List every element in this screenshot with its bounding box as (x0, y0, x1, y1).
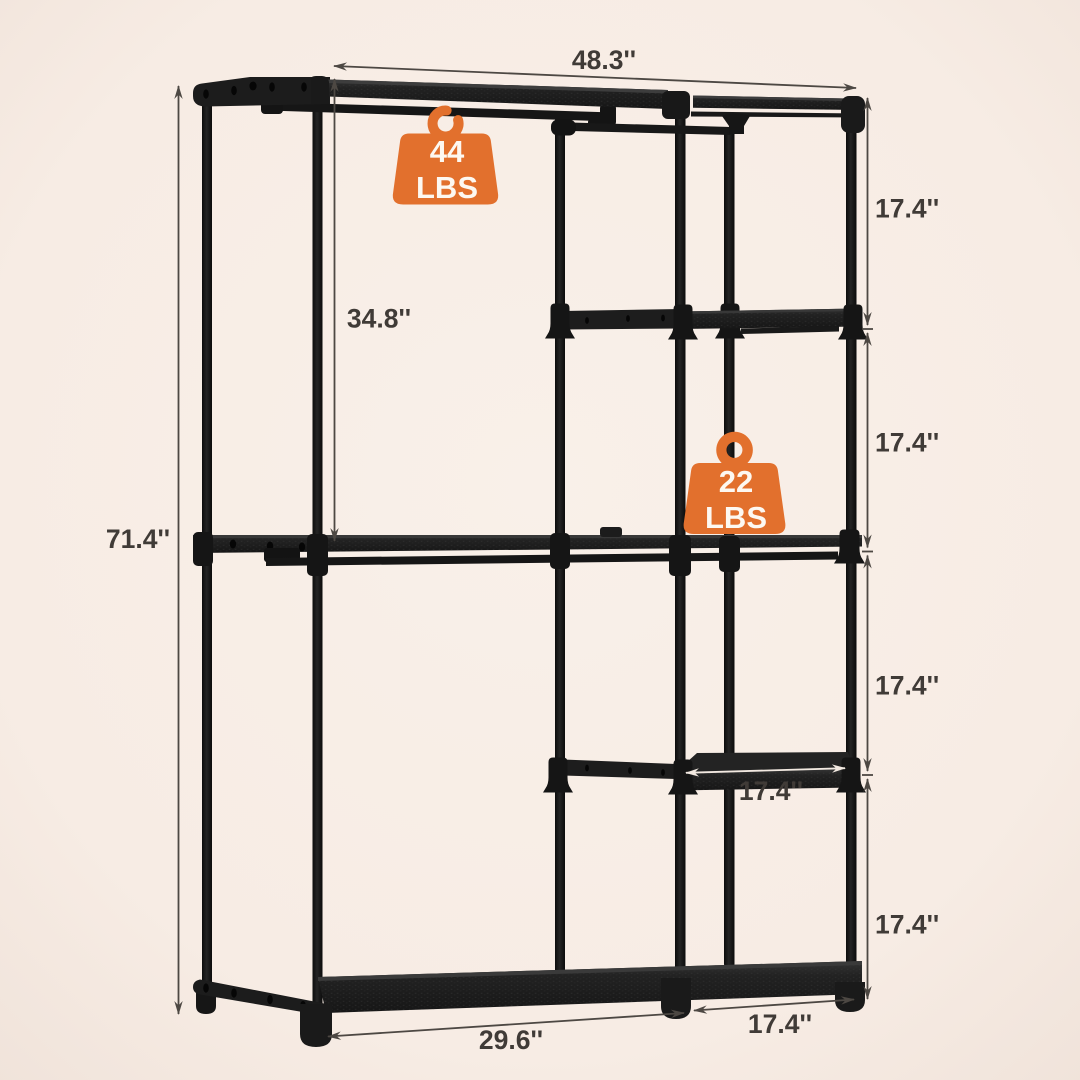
svg-text:17.4'': 17.4'' (875, 910, 939, 940)
svg-text:17.4'': 17.4'' (875, 671, 939, 701)
svg-text:17.4'': 17.4'' (739, 776, 803, 806)
svg-text:34.8'': 34.8'' (347, 304, 411, 334)
svg-text:29.6'': 29.6'' (479, 1025, 543, 1055)
svg-text:22: 22 (719, 464, 753, 499)
svg-text:48.3'': 48.3'' (572, 45, 636, 75)
svg-text:44: 44 (430, 134, 465, 169)
svg-text:17.4'': 17.4'' (875, 194, 939, 224)
svg-text:LBS: LBS (416, 170, 478, 205)
svg-text:LBS: LBS (705, 500, 767, 535)
svg-text:71.4'': 71.4'' (106, 524, 170, 554)
svg-text:17.4'': 17.4'' (875, 428, 939, 458)
svg-text:17.4'': 17.4'' (748, 1009, 812, 1039)
